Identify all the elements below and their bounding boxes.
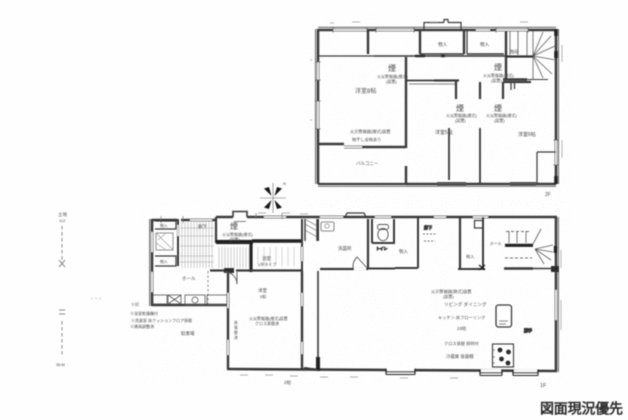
- svg-text:(設置): (設置): [491, 77, 502, 83]
- svg-text:※印: ※印: [131, 301, 139, 307]
- svg-text:クロス張替済: クロス張替済: [255, 320, 279, 326]
- svg-text:煙: 煙: [230, 222, 238, 231]
- svg-text:煙: 煙: [388, 64, 396, 73]
- svg-text:物入: 物入: [466, 253, 475, 260]
- svg-text:物入: 物入: [399, 248, 408, 255]
- svg-text:煙: 煙: [456, 104, 464, 113]
- svg-text:トイレ: トイレ: [376, 246, 388, 251]
- svg-text:2F: 2F: [545, 192, 551, 198]
- svg-text:(設置): (設置): [386, 78, 397, 84]
- svg-text:図面現況優先: 図面現況優先: [540, 401, 623, 417]
- svg-text:物入: 物入: [438, 41, 448, 48]
- svg-text:物入: 物入: [480, 41, 490, 48]
- svg-text:煙: 煙: [494, 63, 502, 72]
- svg-text:土地: 土地: [58, 211, 67, 217]
- svg-text:(設置): (設置): [455, 117, 466, 123]
- svg-text:火災警報器(煙式)設置: 火災警報器(煙式)設置: [350, 128, 390, 135]
- svg-text:廊下: 廊下: [424, 224, 432, 230]
- svg-text:1坪タイプ: 1坪タイプ: [258, 261, 276, 267]
- svg-text:替: 替: [234, 330, 238, 335]
- svg-text:※建具調整済: ※建具調整済: [130, 323, 154, 329]
- svg-text:張: 張: [234, 325, 238, 330]
- svg-text:※洗面室 床クッションフロア張替: ※洗面室 床クッションフロア張替: [131, 317, 192, 323]
- svg-text:洗面所: 洗面所: [338, 245, 352, 252]
- svg-text:勝手: 勝手: [524, 327, 532, 333]
- svg-text:1F: 1F: [540, 383, 547, 389]
- svg-text:済: 済: [234, 335, 238, 340]
- svg-text:16帖: 16帖: [457, 325, 467, 332]
- svg-text:36.M: 36.M: [56, 362, 65, 367]
- svg-text:ホール: ホール: [490, 241, 502, 246]
- svg-text:クロス張替 照明付: クロス張替 照明付: [444, 340, 479, 347]
- svg-text:N: N: [283, 181, 286, 186]
- svg-text:洋室: 洋室: [258, 287, 267, 294]
- svg-text:5帖: 5帖: [260, 293, 266, 299]
- svg-text:廊下: 廊下: [198, 223, 207, 230]
- svg-text:物干し金物あり: 物干し金物あり: [352, 136, 381, 143]
- svg-text:112: 112: [59, 218, 66, 223]
- svg-text:物入: 物入: [160, 259, 168, 264]
- svg-text:階段: 階段: [510, 48, 519, 55]
- svg-text:物入: 物入: [160, 223, 168, 228]
- svg-text:リビング ダイニング: リビング ダイニング: [444, 301, 487, 308]
- svg-text:駐車場: 駐車場: [181, 330, 195, 337]
- svg-text:洋室6帖: 洋室6帖: [518, 131, 536, 138]
- svg-text:ホール: ホール: [182, 276, 196, 281]
- svg-text:キッチン 床フローリング: キッチン 床フローリング: [438, 314, 485, 321]
- svg-text:洋室8帖: 洋室8帖: [355, 87, 376, 95]
- svg-text:(設置): (設置): [443, 293, 454, 299]
- svg-text:煙: 煙: [494, 104, 502, 113]
- svg-text:床: 床: [234, 320, 238, 325]
- svg-text:(設置): (設置): [494, 117, 505, 123]
- svg-text:※浴室乾燥機付: ※浴室乾燥機付: [130, 310, 158, 316]
- svg-text:・・・: ・・・: [90, 296, 102, 301]
- svg-text:2帖: 2帖: [284, 379, 292, 386]
- svg-text:冷蔵庫 食器棚: 冷蔵庫 食器棚: [446, 353, 474, 360]
- svg-text:バルコニー: バルコニー: [356, 161, 379, 166]
- svg-text:(設置): (設置): [229, 236, 240, 242]
- svg-text:洋室5帖: 洋室5帖: [435, 129, 453, 136]
- svg-text:浴室: 浴室: [262, 255, 271, 262]
